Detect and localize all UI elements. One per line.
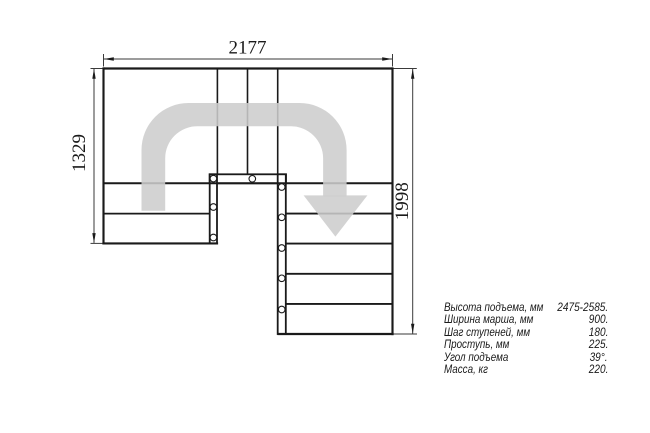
svg-text:2177: 2177: [229, 38, 267, 59]
svg-text:1998: 1998: [392, 182, 413, 220]
svg-text:1329: 1329: [69, 134, 90, 172]
